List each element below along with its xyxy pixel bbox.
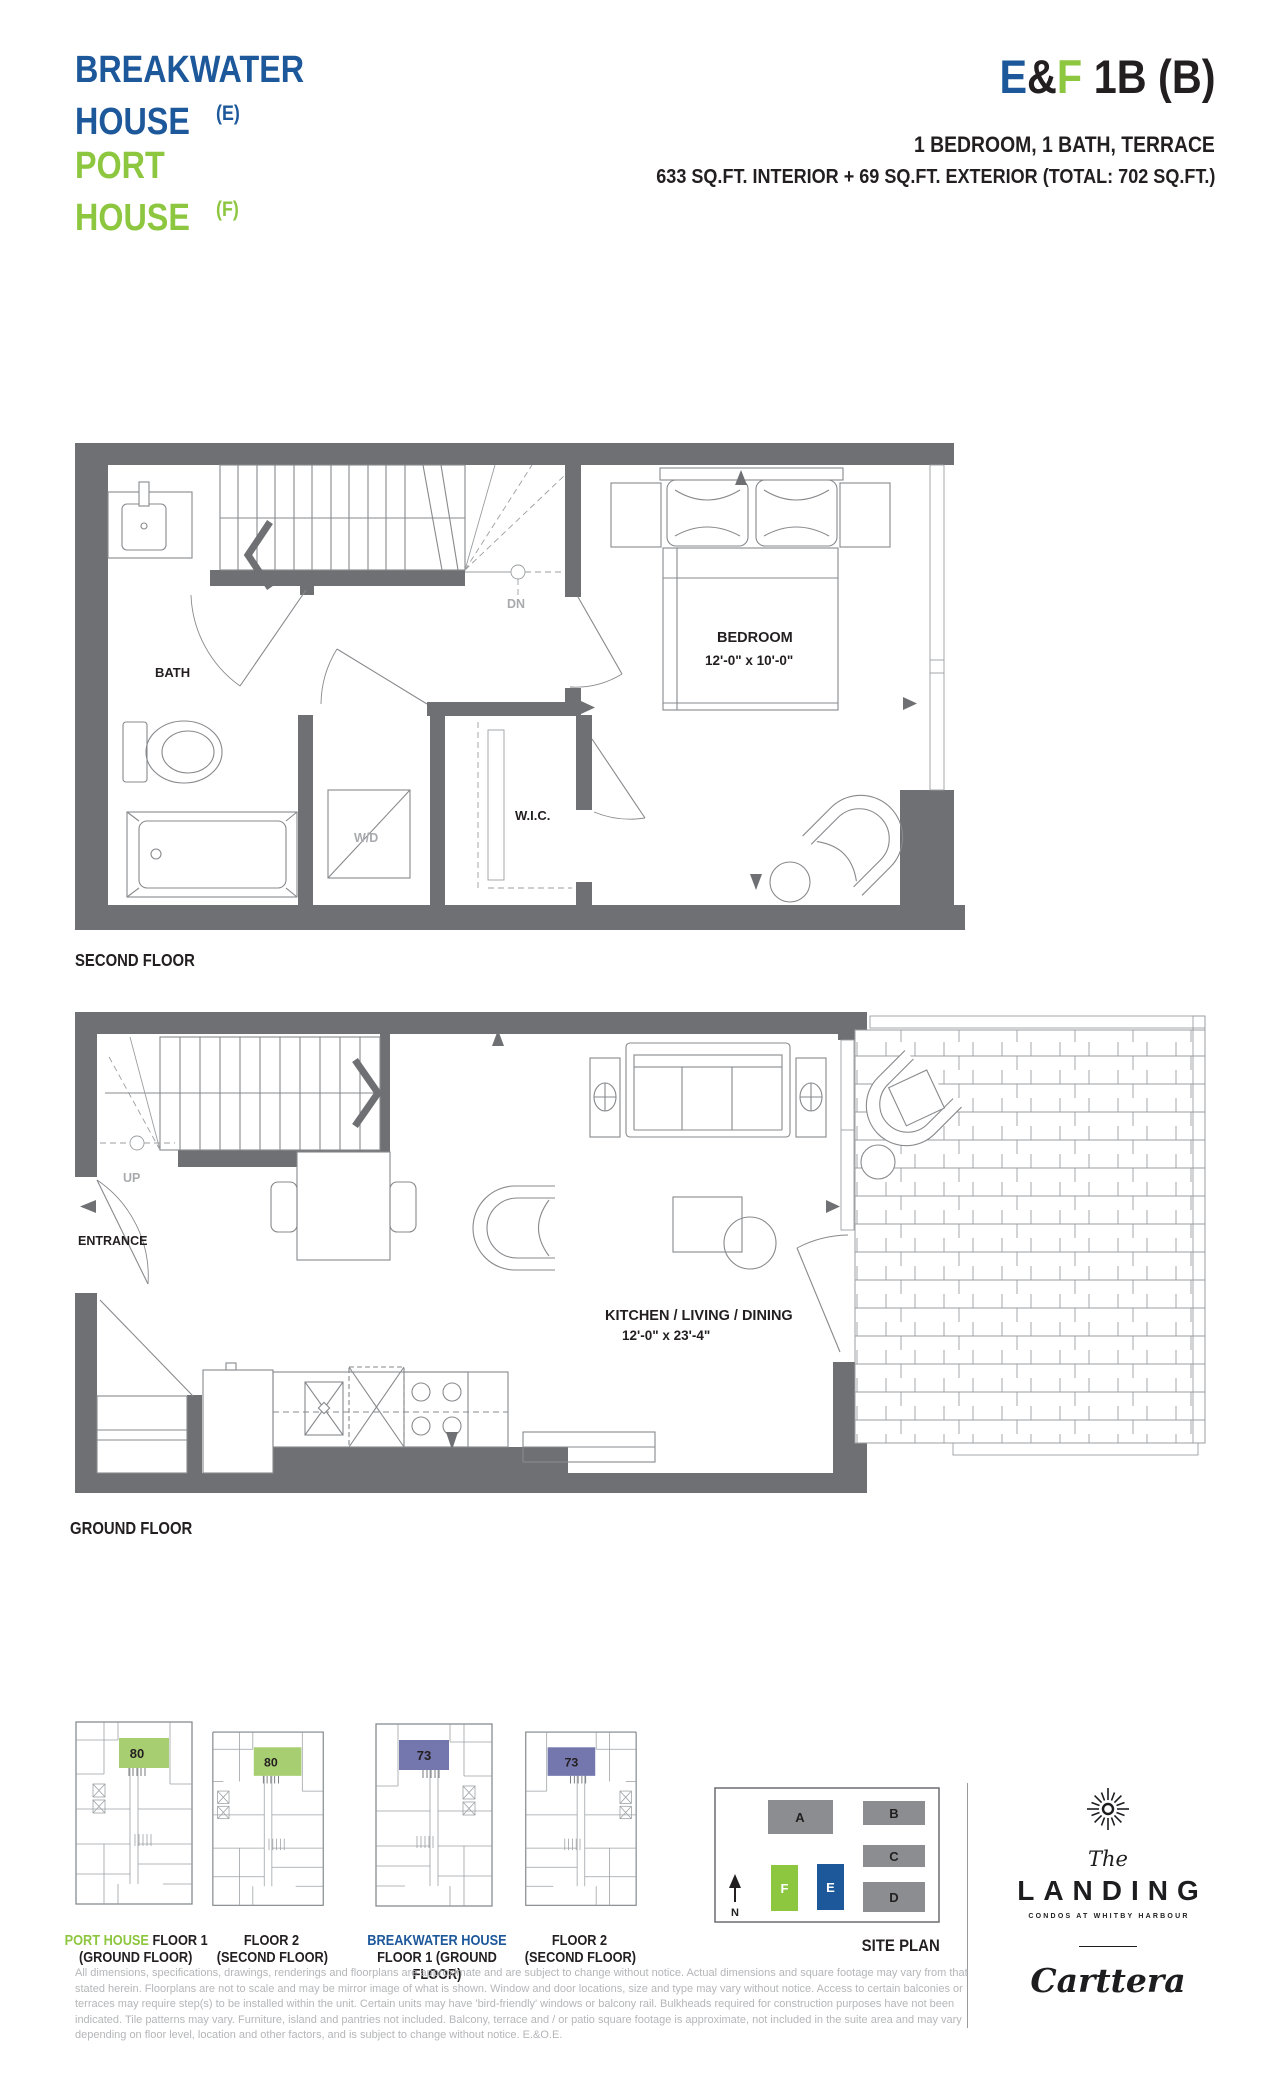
building-b-label: B bbox=[889, 1806, 898, 1821]
stair-down: DN bbox=[220, 465, 565, 611]
keyplan-port-floor1: 80 bbox=[73, 1714, 197, 1919]
nightstand-right bbox=[840, 483, 890, 547]
footer-divider bbox=[967, 1783, 968, 2028]
sofa bbox=[626, 1043, 790, 1137]
kitchen-sink bbox=[305, 1382, 343, 1435]
dining-table bbox=[297, 1152, 390, 1260]
disclaimer-line: depending on floor level, location and o… bbox=[75, 2028, 965, 2044]
entrance-label: ENTRANCE bbox=[78, 1234, 147, 1248]
terrace-rail-top bbox=[870, 1016, 1205, 1028]
ground-floor-label: GROUND FLOOR bbox=[70, 1518, 214, 1539]
walk-in-closet: W.I.C. bbox=[478, 722, 645, 892]
logo-the: The bbox=[1008, 1847, 1208, 1871]
disclaimer: All dimensions, specifications, drawings… bbox=[75, 1966, 965, 2044]
dining-chair-left bbox=[271, 1182, 297, 1232]
dining-area bbox=[271, 1152, 416, 1260]
up-label: UP bbox=[123, 1171, 140, 1185]
keyplan-port-floor2: 80 bbox=[210, 1722, 328, 1922]
kld-dims: 12'-0" x 23'-4" bbox=[622, 1328, 710, 1343]
port-line1: PORT bbox=[75, 144, 165, 188]
side-table-right bbox=[796, 1058, 826, 1137]
terrace-door-arrow bbox=[826, 1200, 840, 1213]
terrace-rail-bottom bbox=[953, 1443, 1198, 1455]
kld-label: KITCHEN / LIVING / DINING bbox=[605, 1308, 793, 1324]
logo-tagline: CONDOS AT WHITBY HARBOUR bbox=[1008, 1913, 1208, 1920]
sun-icon bbox=[1085, 1786, 1131, 1832]
unit-number: 73 bbox=[417, 1748, 431, 1763]
unit-subtitle: 1 BEDROOM, 1 BATH, TERRACE bbox=[580, 132, 1215, 158]
side-table-left bbox=[590, 1058, 620, 1137]
port-suffix: (F) bbox=[216, 188, 239, 232]
second-floor-plan: DN BATH bbox=[60, 430, 980, 975]
dishwasher bbox=[349, 1367, 404, 1447]
bedroom: BEDROOM 12'-0" x 10'-0" bbox=[611, 468, 920, 902]
building-f-label: F bbox=[781, 1881, 789, 1896]
fridge bbox=[203, 1370, 273, 1473]
unit-ampersand: & bbox=[1027, 50, 1057, 103]
unit-plan-code: 1B (B) bbox=[1082, 50, 1215, 103]
living-area: KITCHEN / LIVING / DINING 12'-0" x 23'-4… bbox=[473, 1043, 826, 1462]
stove bbox=[404, 1372, 468, 1447]
hall-doors bbox=[191, 590, 622, 704]
unit-letter-f: F bbox=[1056, 50, 1081, 103]
keyplan-label-2: FLOOR 2 (SECOND FLOOR) bbox=[182, 1932, 362, 1966]
unit-area-line: 633 SQ.FT. INTERIOR + 69 SQ.FT. EXTERIOR… bbox=[580, 165, 1215, 189]
entry-closet bbox=[97, 1396, 187, 1473]
keyplan-breakwater-floor1: 73 bbox=[371, 1716, 495, 1921]
keyplan-breakwater-floor2: 73 bbox=[521, 1722, 639, 1922]
breakwater-line1: BREAKWATER bbox=[75, 48, 304, 92]
site-plan: A B C D F E N bbox=[713, 1786, 943, 1926]
plan-arrows bbox=[581, 470, 917, 890]
breakwater-line2: HOUSE bbox=[75, 100, 190, 144]
toilet bbox=[123, 721, 222, 783]
bedroom-side-table bbox=[770, 862, 810, 902]
port-line2: HOUSE bbox=[75, 196, 190, 240]
terrace-table bbox=[861, 1145, 895, 1179]
second-floor-label: SECOND FLOOR bbox=[75, 950, 216, 971]
dn-label: DN bbox=[507, 597, 525, 611]
bedroom-window bbox=[930, 465, 944, 790]
unit-title-block: E&F 1B (B) 1 BEDROOM, 1 BATH, TERRACE 63… bbox=[580, 52, 1215, 189]
disclaimer-line: terraces may require step(s) to be insta… bbox=[75, 1997, 965, 2013]
building-d-label: D bbox=[889, 1890, 898, 1905]
kitchen-counter bbox=[273, 1372, 508, 1447]
unit-number: 73 bbox=[565, 1755, 579, 1769]
entrance-arrow bbox=[80, 1200, 96, 1213]
disclaimer-line: All dimensions, specifications, drawings… bbox=[75, 1966, 965, 1982]
north-label: N bbox=[731, 1907, 739, 1919]
vanity-sink bbox=[108, 482, 192, 558]
breakwater-suffix: (E) bbox=[216, 92, 240, 136]
bed bbox=[663, 480, 838, 710]
bedroom-label: BEDROOM bbox=[717, 630, 793, 646]
unit-name: E&F 1B (B) bbox=[580, 52, 1215, 102]
floorplan-page: BREAKWATER HOUSE (E) PORT HOUSE (F) E&F … bbox=[0, 0, 1275, 2100]
unit-letter-e: E bbox=[999, 50, 1027, 103]
keyplan-label-4: FLOOR 2 (SECOND FLOOR) bbox=[490, 1932, 670, 1966]
unit-number: 80 bbox=[264, 1755, 278, 1769]
building-title: BREAKWATER HOUSE (E) PORT HOUSE (F) bbox=[75, 48, 345, 240]
landing-logo: The LANDING CONDOS AT WHITBY HARBOUR Car… bbox=[1008, 1786, 1208, 2000]
disclaimer-line: stated herein. Floorplans are not to sca… bbox=[75, 1982, 965, 1998]
armchair bbox=[473, 1186, 555, 1270]
washer-dryer-closet: W/D bbox=[328, 790, 410, 878]
logo-name: LANDING bbox=[1008, 1875, 1208, 1907]
bathtub bbox=[127, 812, 297, 897]
bath-label: BATH bbox=[155, 665, 190, 680]
second-floor-walls bbox=[75, 443, 965, 930]
logo-rule bbox=[1079, 1946, 1137, 1947]
nightstand-left bbox=[611, 483, 661, 547]
dining-chair-right bbox=[390, 1182, 416, 1232]
wic-label: W.I.C. bbox=[515, 808, 550, 823]
bedroom-dims: 12'-0" x 10'-0" bbox=[705, 653, 793, 668]
terrace bbox=[850, 1016, 1205, 1455]
developer-signature: Carttera bbox=[1008, 1961, 1208, 2000]
bathroom: BATH bbox=[108, 482, 297, 897]
wd-label: W/D bbox=[354, 831, 378, 845]
disclaimer-line: indicated. Tile patterns may vary. Furni… bbox=[75, 2013, 965, 2029]
ground-floor-walls bbox=[75, 1012, 867, 1493]
building-e-label: E bbox=[826, 1880, 835, 1895]
building-a-label: A bbox=[795, 1810, 805, 1825]
unit-number: 80 bbox=[130, 1746, 144, 1761]
building-c-label: C bbox=[889, 1849, 899, 1864]
ground-floor-plan: UP ENTRANCE bbox=[60, 1000, 1220, 1545]
site-plan-label: SITE PLAN bbox=[770, 1936, 940, 1956]
